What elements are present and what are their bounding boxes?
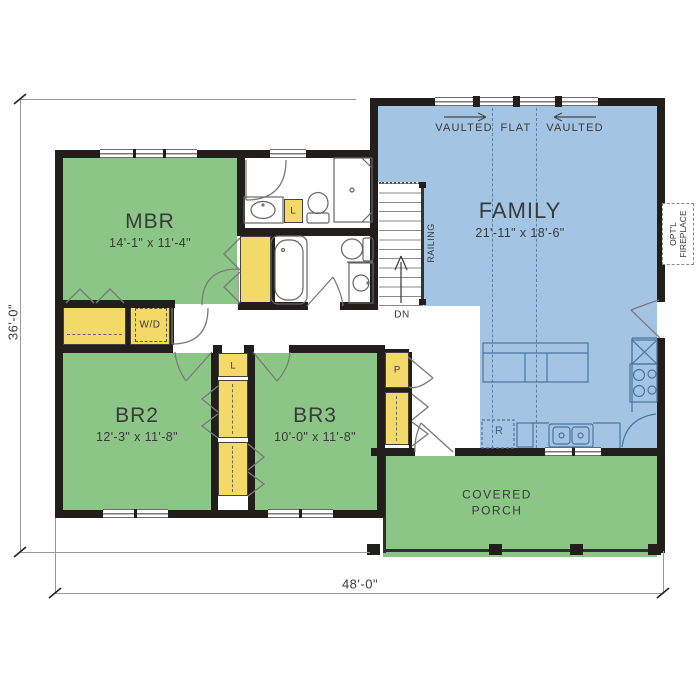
porch-post [570,544,583,555]
window-mullion [473,96,480,107]
wall-br-north-a [55,345,173,353]
room-dims-br2: 12'-3" x 11'-8" [96,430,178,444]
dimension-width: 48'-0" [342,577,378,592]
wall-family-left-upper [370,98,378,158]
porch-post [367,544,380,555]
wall-porch-kitchen-b [455,448,545,456]
wall-porch-kitchen-c [601,448,661,456]
wall-mbr-wardrobe-east [271,232,275,304]
room-dims-family: 21'-11" x 18'-6" [475,226,564,240]
wall-right-upper [657,98,665,302]
ext-line-bottom-right [663,551,664,594]
mbr-window [100,149,197,158]
wall-closet-strip-east [409,352,412,448]
ext-line-mid [20,552,370,553]
window-mullion [572,447,575,456]
refrigerator-label: R [495,425,503,437]
stairs-dn-label: DN [394,310,409,321]
porch-front-edge [383,549,659,552]
master-bath-fixtures [244,158,372,223]
ceiling-break-line [536,108,537,448]
room-dims-mbr: 14'-1" x 11'-4" [109,236,191,250]
pantry-label: P [394,365,400,376]
mbr-closet [63,303,126,345]
wall-bath-south-e [340,302,378,310]
window-mullion [134,509,137,518]
stair-railing [421,182,424,304]
ext-line-bottom-left [55,518,56,594]
ceiling-label-flat: FLAT [501,122,532,134]
closet-shelf-line [67,334,122,335]
room-dims-br3: 10'-0" x 11'-8" [274,430,356,444]
family-window-3 [520,97,555,106]
wall-wd-post-b [170,303,174,345]
window-mullion [133,149,136,158]
window-mullion [513,96,520,107]
family-window-2 [480,97,513,106]
wall-br-north-d [289,345,385,353]
wall-corridor-north [55,300,175,308]
washer-dryer-label: W/D [140,320,161,331]
staircase [379,182,423,306]
ext-line-top [20,99,356,100]
wall-br-north-c [244,345,254,353]
porch-post [489,544,502,555]
family-window-4 [562,97,598,106]
room-label-porch: COVERED PORCH [451,487,543,518]
wall-br2-east [211,353,218,510]
room-label-family: FAMILY [479,198,562,224]
family-window-1 [435,97,473,106]
dim-line-width [55,593,664,594]
wall-right-lower [657,338,665,553]
br3-closet [218,442,248,496]
mbr-wardrobe [240,236,271,304]
railing-post [419,299,426,305]
br2-closet [218,380,248,438]
window-mullion [555,96,562,107]
floor-plan-canvas: MBR 14'-1" x 11'-4" BR2 12'-3" x 11'-8" … [0,0,700,700]
wall-mbr-bath [237,158,245,232]
ceiling-label-vaulted-left: VAULTED [435,122,493,134]
master-bath-window [270,149,306,158]
closet-rod-line [232,446,233,492]
closet-rod-line [232,384,233,434]
railing-label: RAILING [426,223,436,263]
fireplace-label: OPT'L FIREPLACE [668,202,688,266]
coat-closet [385,392,409,445]
wall-pantry-divider [385,388,409,392]
linen-label-hall: L [230,361,235,372]
wall-left [55,150,63,518]
wall-br3-east [377,345,385,518]
closet-rod-line [396,396,397,441]
window-mullion [163,149,166,158]
room-label-mbr: MBR [125,210,175,234]
linen-label-bath: L [290,206,295,217]
room-label-br2: BR2 [115,404,159,428]
hall-bath-fixtures [271,236,373,304]
room-label-br3: BR3 [293,404,337,428]
wall-closet-strip-cap [385,349,409,352]
ceiling-label-vaulted-right: VAULTED [546,122,604,134]
ceiling-break-line [492,108,493,448]
wall-mbr-wardrobe-cap [240,232,275,236]
dimension-depth: 36'-0" [6,304,21,340]
wall-wd-post-a [126,303,130,345]
wall-br3-west [248,353,255,510]
wall-br-north-b [213,345,222,353]
railing-post [419,182,426,188]
window-mullion [299,509,302,518]
